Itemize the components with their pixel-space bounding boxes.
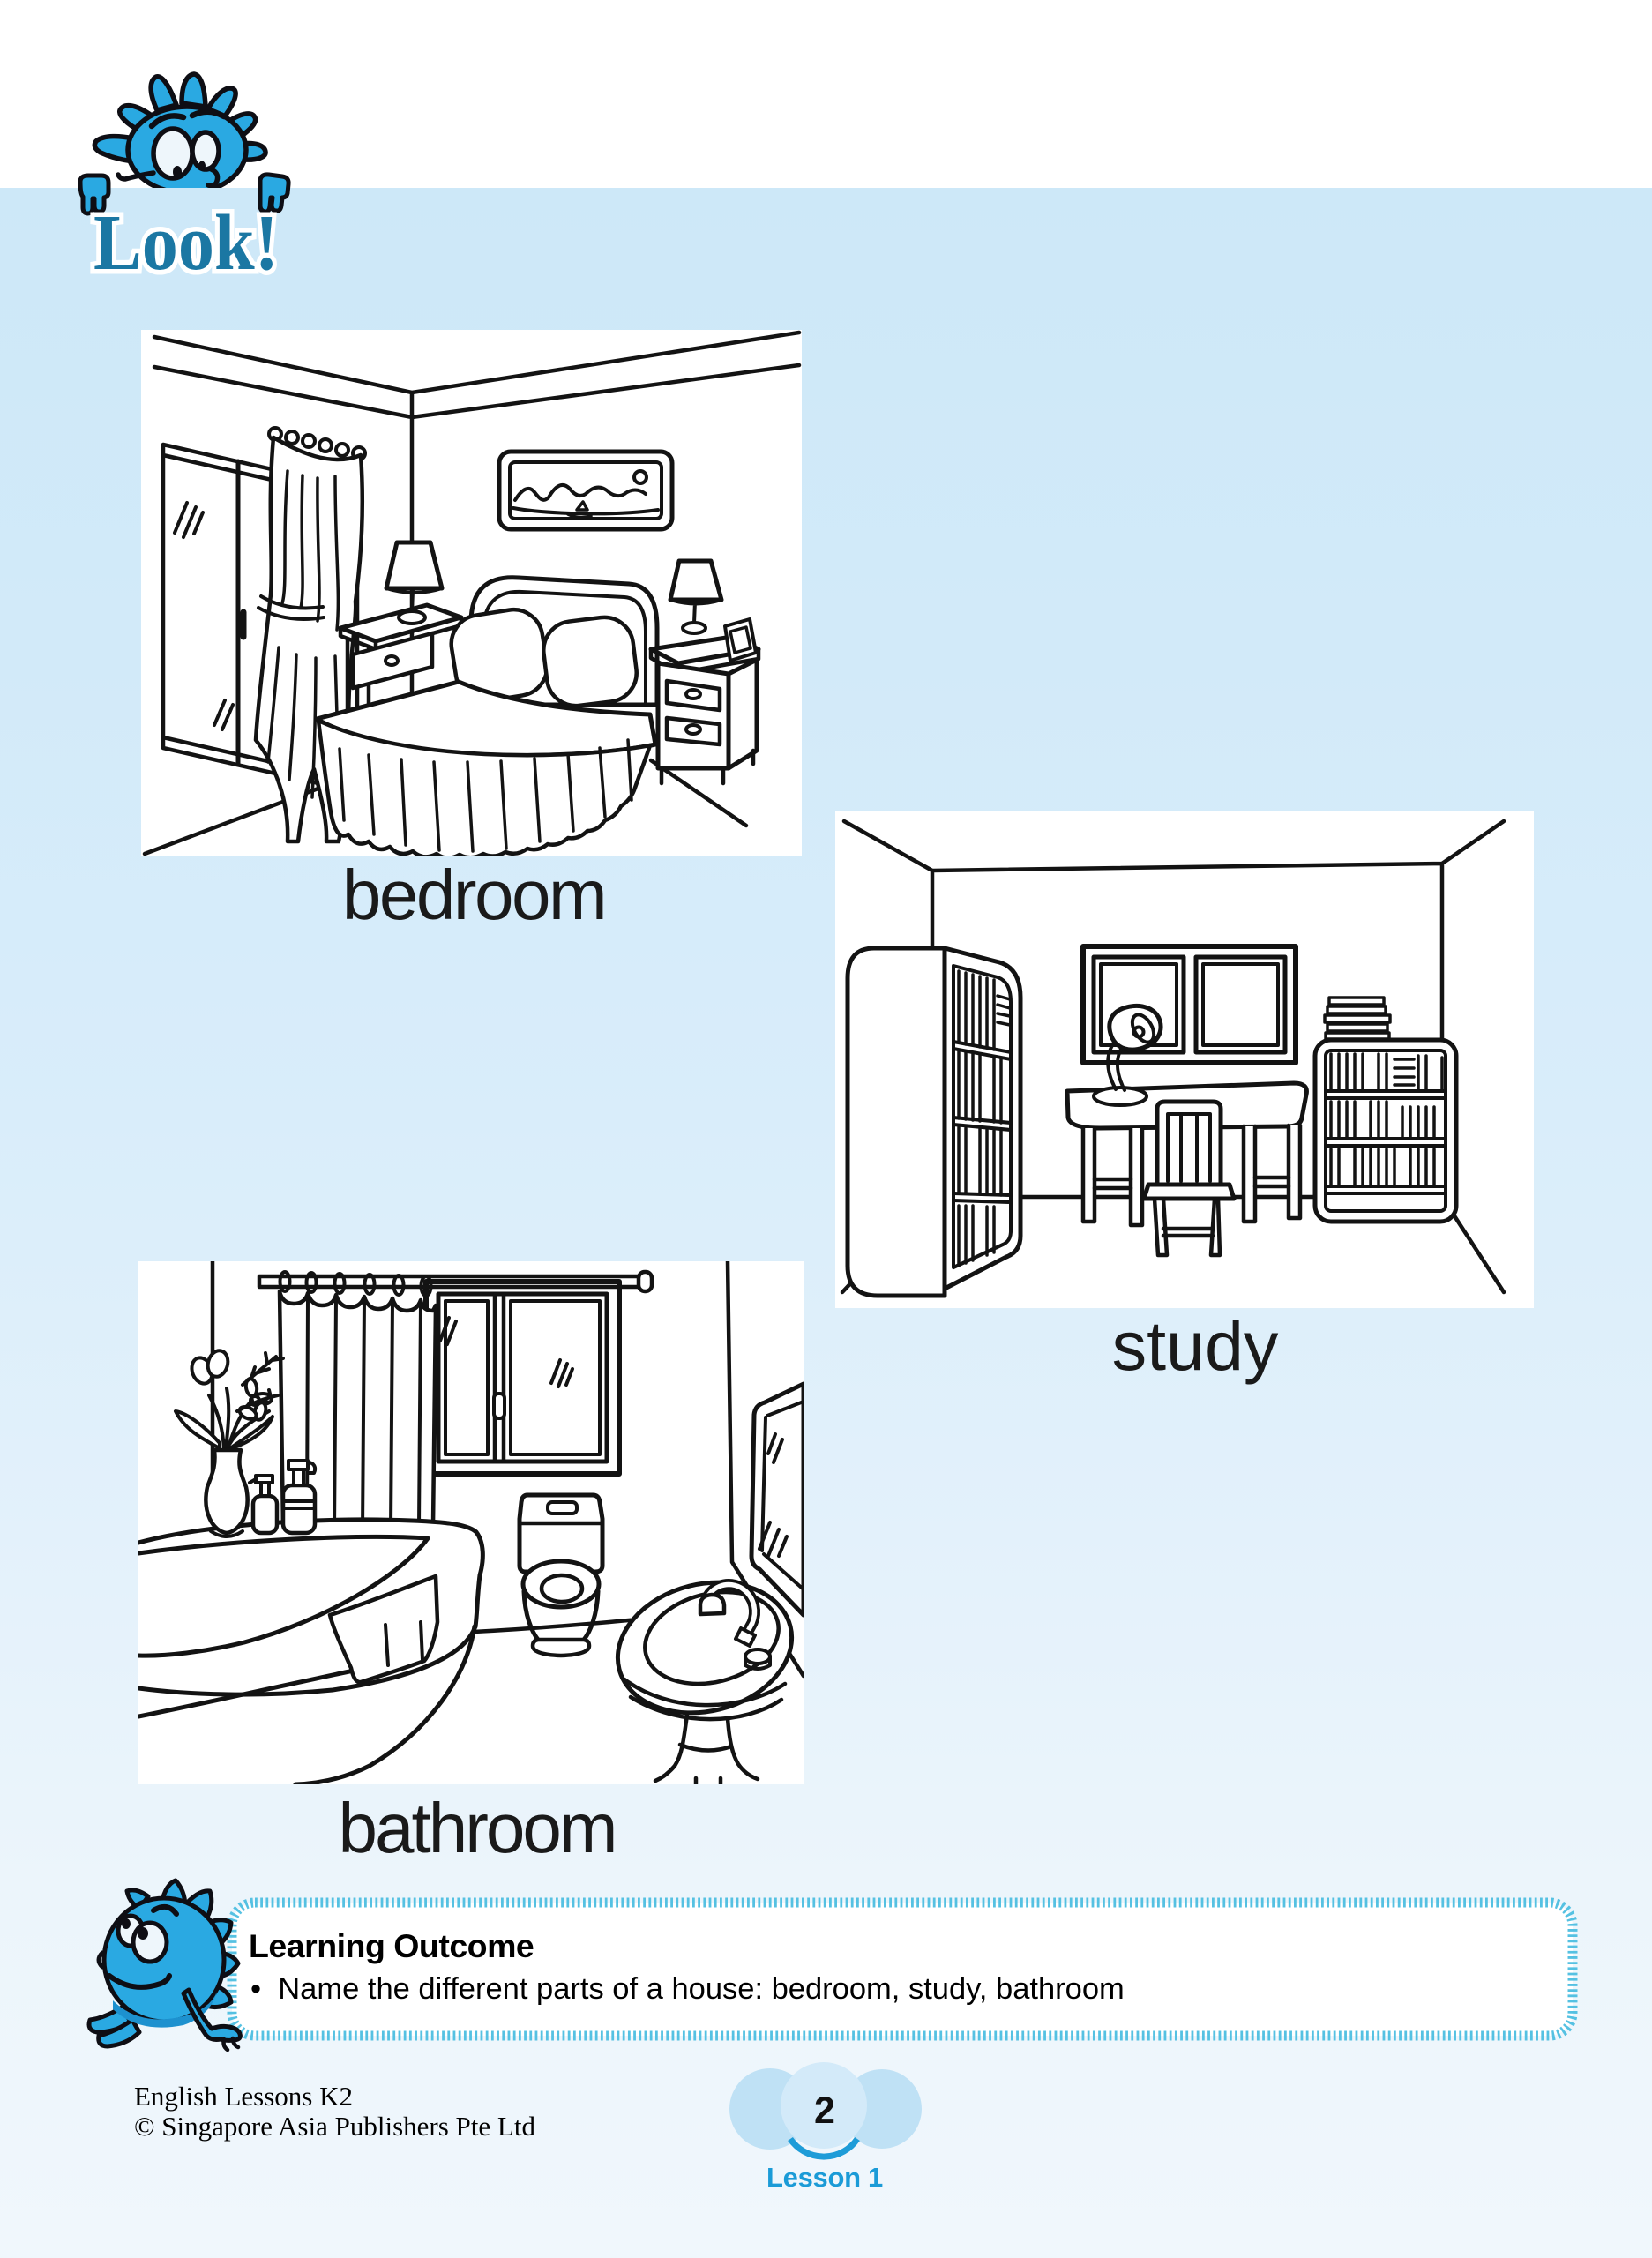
svg-text:Look!: Look! xyxy=(93,199,279,287)
